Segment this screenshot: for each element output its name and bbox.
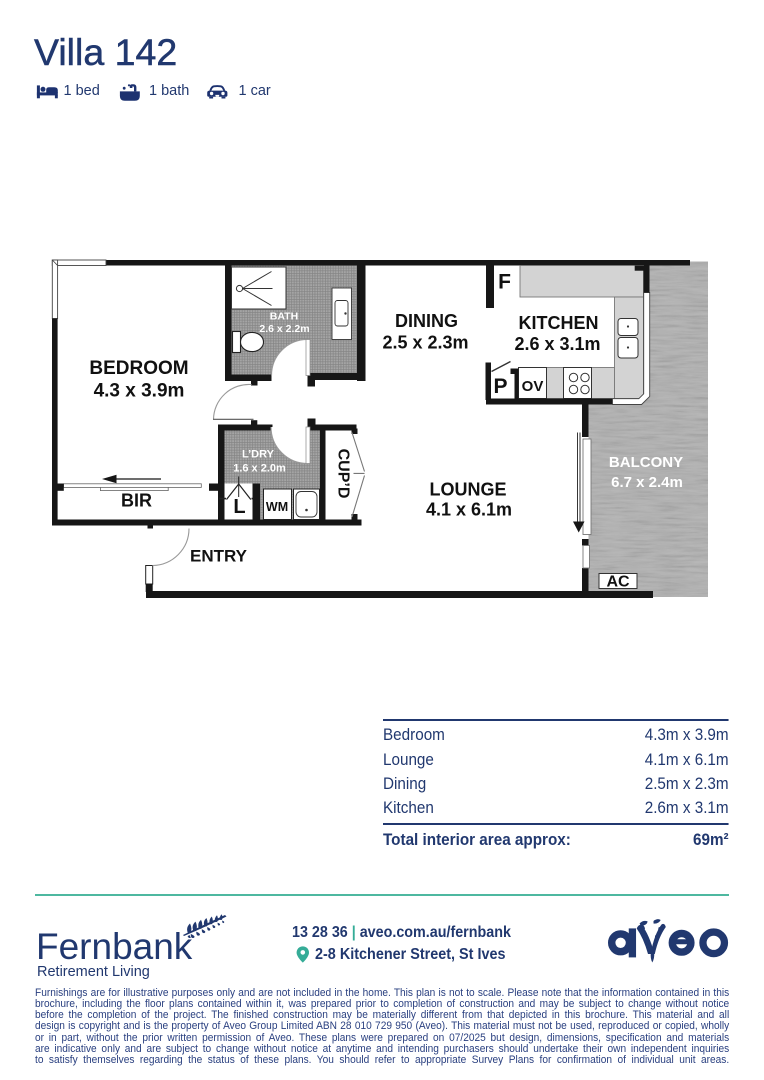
- svg-text:ENTRY: ENTRY: [190, 547, 248, 566]
- svg-text:WM: WM: [266, 500, 288, 514]
- svg-text:BALCONY: BALCONY: [609, 454, 683, 471]
- svg-text:LOUNGE: LOUNGE: [429, 480, 506, 500]
- svg-text:L: L: [233, 496, 245, 518]
- svg-text:1.6 x 2.0m: 1.6 x 2.0m: [233, 463, 286, 475]
- svg-text:6.7 x 2.4m: 6.7 x 2.4m: [611, 474, 683, 491]
- svg-text:2.6 x 2.2m: 2.6 x 2.2m: [259, 323, 309, 335]
- svg-text:P: P: [493, 375, 507, 398]
- svg-text:OV: OV: [522, 378, 544, 395]
- svg-text:4.3 x 3.9m: 4.3 x 3.9m: [94, 381, 185, 402]
- svg-text:2.5 x 2.3m: 2.5 x 2.3m: [382, 333, 468, 353]
- svg-text:L’DRY: L’DRY: [242, 449, 275, 461]
- svg-text:BEDROOM: BEDROOM: [89, 358, 188, 379]
- svg-text:DINING: DINING: [395, 311, 458, 331]
- svg-text:BATH: BATH: [270, 311, 298, 323]
- svg-text:2.6 x 3.1m: 2.6 x 3.1m: [514, 334, 600, 354]
- svg-text:BIR: BIR: [121, 491, 152, 511]
- svg-text:4.1 x 6.1m: 4.1 x 6.1m: [426, 500, 512, 520]
- svg-text:KITCHEN: KITCHEN: [519, 313, 599, 333]
- svg-text:CUP’D: CUP’D: [335, 449, 352, 499]
- svg-text:AC: AC: [606, 574, 630, 591]
- svg-text:F: F: [498, 271, 511, 294]
